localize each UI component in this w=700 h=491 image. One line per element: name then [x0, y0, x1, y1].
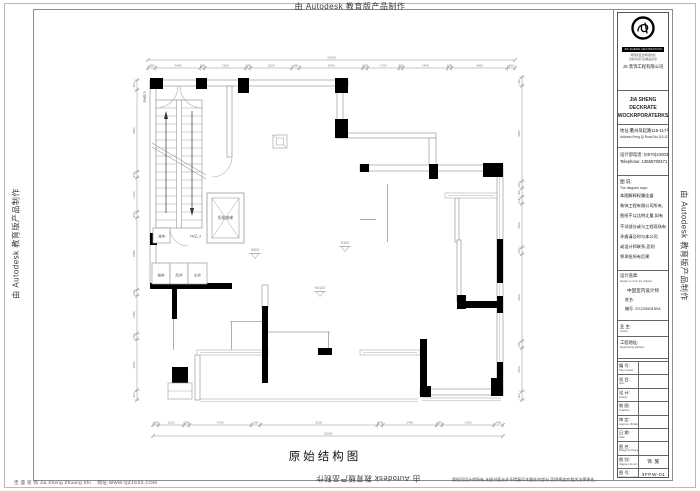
notes-line: 矛盾请及时与本公司 [620, 232, 666, 242]
elevator-label: 担架电梯 [218, 215, 233, 220]
svg-text:22396: 22396 [327, 55, 336, 59]
owner-label-cn: 业 主: [620, 323, 666, 330]
notes-line: 装饰工程有限公司所有, [620, 201, 666, 211]
svg-text:300: 300 [517, 190, 521, 195]
fire-door-top-label: FM甲.3 [143, 91, 147, 102]
seal-label-en: Design to cover the chapter: [620, 279, 666, 284]
svg-text:240: 240 [132, 172, 136, 177]
titleblock-notes-section: 图 说: The diagram says: 本图解释权属佳盛 装饰工程有限公司… [618, 176, 668, 271]
svg-text:240: 240 [517, 197, 521, 202]
notes-line: 将承担所有后果. [620, 252, 666, 262]
titleblock-logo-section: JIA SHENG DECORATION 特别的爱给特别的您 真诚为您打造精品家… [618, 13, 668, 91]
svg-text:240: 240 [363, 63, 368, 67]
shaft-strong-electric-label: 强电 [157, 273, 165, 278]
titleblock-row-date: 日 期:Date: [618, 429, 668, 442]
svg-text:240: 240 [517, 248, 521, 253]
svg-text:3350: 3350 [132, 127, 136, 134]
svg-text:400: 400 [132, 82, 136, 87]
logo-slogan-2: 真诚为您打造精品家居 [618, 57, 668, 61]
titleblock-row-drawing-name: 图 名:Design for Name: [618, 442, 668, 455]
row-label-en: Approve officially: [619, 423, 637, 426]
svg-text:1700: 1700 [380, 63, 387, 67]
svg-text:240: 240 [437, 420, 442, 424]
autodesk-banner-left: 由 Autodesk 教育版产品制作 [11, 164, 22, 324]
svg-text:1130: 1130 [168, 420, 175, 424]
autodesk-banner-top: 由 Autodesk 教育版产品制作 [0, 1, 700, 12]
footer-website: 网址:WWW.QZJGZS.COM [97, 480, 157, 485]
level-h300-label-2: H300 [341, 241, 350, 245]
titleblock-owner-section: 业 主: Owner: [618, 321, 668, 337]
svg-text:2220: 2220 [268, 63, 275, 67]
svg-text:3000: 3000 [476, 63, 483, 67]
titleblock-row-approval: 审 定:Approve officially: [618, 416, 668, 429]
svg-text:240: 240 [377, 420, 382, 424]
svg-text:1550: 1550 [132, 311, 136, 318]
row-value [639, 362, 668, 374]
svg-text:300: 300 [517, 78, 521, 83]
notes-line: 本图解释权属佳盛 [620, 191, 666, 201]
titleblock-seal-section: 设计盖章: Design to cover the chapter: 中国室内设… [618, 271, 668, 321]
row-value [639, 429, 668, 441]
company-name-en-1: JIA SHENG DECKRATE [618, 96, 668, 112]
project-address-label-en: Engineering address: [620, 346, 666, 349]
svg-text:2400: 2400 [406, 420, 413, 424]
svg-text:400: 400 [293, 63, 298, 67]
notes-line: 图纸不以比例丈量,如有 [620, 211, 666, 221]
company-name-cn: JS 装饰工程有限公司 [618, 64, 668, 70]
titleblock-row-item: 项 目:Item: [618, 375, 668, 388]
level-h3120-label: H3120 [315, 286, 326, 290]
power-room-label: 强电 [158, 234, 165, 239]
notes-line: 或设计师联系,否则 [620, 242, 666, 252]
svg-text:400: 400 [149, 63, 154, 67]
titleblock-row-drawing-category: 图 别:Diagram do not: 饰 施 [618, 456, 668, 469]
project-address-label-cn: 工程地址: [620, 339, 666, 346]
row-label-en: Diagram do not: [619, 463, 637, 466]
row-value [639, 389, 668, 401]
svg-text:3000: 3000 [517, 294, 521, 301]
svg-text:240: 240 [184, 420, 189, 424]
svg-text:1500: 1500 [517, 366, 521, 373]
row-label-en: Item: [619, 382, 637, 385]
fire-door-bottom-label: FM乙.3 [190, 234, 201, 239]
svg-text:5200: 5200 [315, 420, 322, 424]
seal-name-field: 姓名: [620, 297, 666, 303]
titleblock-row-drafting: 制 图:Graphics: [618, 402, 668, 415]
svg-text:2400: 2400 [422, 63, 429, 67]
owner-label-en: Owner: [620, 330, 666, 333]
drawing-title: 原始结构图 [240, 448, 410, 464]
svg-text:400: 400 [509, 63, 514, 67]
autodesk-banner-bottom: 由 Autodesk 教育版产品制作 [283, 473, 453, 484]
company-logo-icon [630, 15, 656, 41]
copyright-note: 版权归设计师所有,未经书面允许不得复印本图任何部分,否则将追究相关法律责任。 [452, 477, 610, 483]
svg-text:240: 240 [246, 63, 251, 67]
seal-number-field: 编号: ZYZ20501904 [620, 306, 666, 312]
floor-plan-canvas: 4002400240220024022204003400240170020024… [40, 45, 610, 450]
plan-geometry-layer: 4002400240220024022204003400240170020024… [132, 55, 525, 438]
row-label-en: Diagram number: [619, 476, 637, 478]
svg-text:240: 240 [153, 420, 158, 424]
titleblock: JIA SHENG DECORATION 特别的爱给特别的您 真诚为您打造精品家… [617, 12, 669, 478]
row-value [639, 442, 668, 454]
row-value [639, 402, 668, 414]
telephone-cn: 设计部电话: (0570)2300388 [620, 151, 666, 158]
footer-company-line: 佳 盛 装 饰 Jia Sheng Zhuang Shi 网址:WWW.QZJG… [14, 480, 157, 486]
row-label-en: Part number: [619, 369, 637, 372]
svg-text:240: 240 [132, 290, 136, 295]
titleblock-company-en-section: JIA SHENG DECKRATE WOCKRPORATERKS [618, 91, 668, 125]
titleblock-row-design: 设 计:Design: [618, 389, 668, 402]
logo-caption: JIA SHENG DECORATION [622, 47, 664, 52]
svg-text:240: 240 [517, 342, 521, 347]
notes-line: 不详部分或与工程现场有 [620, 222, 666, 232]
shaft-water-well-label: 水井 [194, 273, 202, 278]
svg-text:240: 240 [517, 182, 521, 187]
svg-text:2950: 2950 [132, 250, 136, 257]
titleblock-row-number: 编 号:Part number: [618, 362, 668, 375]
titleblock-divider-line [613, 9, 614, 480]
titleblock-telephone-section: 设计部电话: (0570)2300388 Telephone: 13655700… [618, 148, 668, 176]
svg-text:2750: 2750 [217, 420, 224, 424]
svg-text:2300: 2300 [465, 420, 472, 424]
svg-text:2200: 2200 [222, 63, 229, 67]
svg-text:1500: 1500 [517, 222, 521, 229]
svg-text:2400: 2400 [174, 63, 181, 67]
address-en: Address:Feng Qi Road No.115-117 [620, 134, 666, 140]
row-label-en: Design: [619, 396, 637, 399]
svg-text:3400: 3400 [328, 63, 335, 67]
row-value-drawing-number: 3FPW-01 [639, 469, 668, 478]
svg-text:240: 240 [132, 334, 136, 339]
svg-text:2080: 2080 [132, 361, 136, 368]
notes-title-cn: 图 说: [620, 178, 666, 185]
svg-text:400: 400 [132, 392, 136, 397]
shaft-wind-well-label: 风井 [175, 273, 183, 278]
address-cn: 地址:衢州凤起路115-117号 [620, 127, 666, 134]
svg-text:240: 240 [132, 212, 136, 217]
svg-text:300: 300 [517, 393, 521, 398]
titleblock-row-drawing-number: 图 号:Diagram number: 3FPW-01 [618, 469, 668, 478]
level-h300-label-1: H300 [251, 248, 260, 252]
row-value-drawing-category: 饰 施 [639, 456, 668, 468]
row-label-en: Graphics: [619, 409, 637, 412]
svg-text:1400: 1400 [132, 191, 136, 198]
company-name-en-2: WOCKRPORATERKS [618, 112, 668, 120]
svg-text:400: 400 [496, 420, 501, 424]
telephone-en: Telephone: 13655700471 [620, 158, 666, 166]
footer-company-name: 佳 盛 装 饰 Jia Sheng Zhuang Shi [14, 480, 91, 485]
titleblock-address-section: 地址:衢州凤起路115-117号 Address:Feng Qi Road No… [618, 125, 668, 148]
row-value [639, 416, 668, 428]
svg-text:240: 240 [200, 63, 205, 67]
titleblock-project-address-section: 工程地址: Engineering address: [618, 337, 668, 359]
autodesk-banner-right: 由 Autodesk 教育版产品制作 [679, 166, 690, 326]
svg-text:400: 400 [253, 420, 258, 424]
row-label-en: Date: [619, 436, 637, 439]
row-label-en: Design for Name: [619, 449, 637, 452]
seal-designer-title: 中国室内设计师 [620, 288, 666, 294]
svg-text:22696: 22696 [324, 431, 333, 435]
svg-text:3300: 3300 [517, 130, 521, 137]
row-value [639, 375, 668, 387]
